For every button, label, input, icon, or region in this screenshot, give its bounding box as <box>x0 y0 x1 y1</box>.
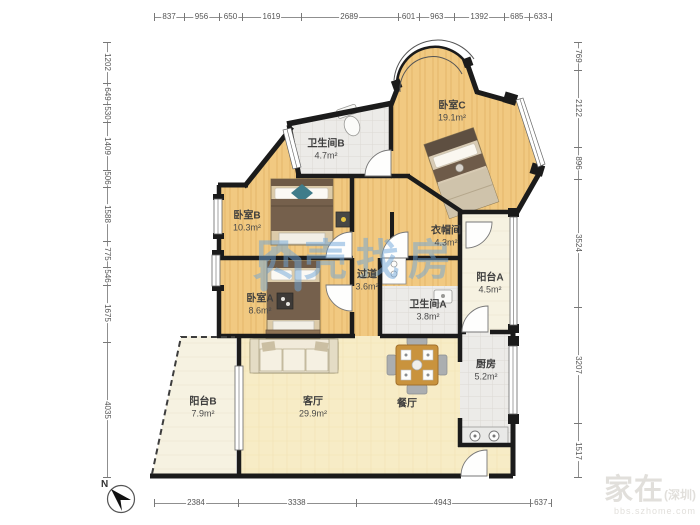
dimension-segment: 3524 <box>572 179 584 307</box>
dimension-segment: 4035 <box>101 342 113 478</box>
dimension-segment: 530 <box>101 104 113 122</box>
dimension-value: 3207 <box>574 355 582 375</box>
dimension-segment: 601 <box>398 11 420 23</box>
dimension-value: 4943 <box>433 499 453 507</box>
dimension-segment: 506 <box>101 170 113 187</box>
dimension-line-top: 837956650161926896019631392685633 <box>154 11 552 23</box>
dimension-segment: 4943 <box>356 497 530 509</box>
dimension-segment: 769 <box>572 42 584 70</box>
dimension-segment: 3207 <box>572 307 584 423</box>
sliding-door <box>235 366 243 450</box>
sofa-icon <box>250 339 338 373</box>
dimension-value: 1675 <box>103 304 111 324</box>
dimension-segment: 896 <box>572 147 584 179</box>
dimension-value: 649 <box>103 86 111 101</box>
window <box>212 255 220 286</box>
dimension-value: 956 <box>194 13 209 21</box>
dimension-value: 506 <box>103 171 111 186</box>
dimension-value: 637 <box>533 499 548 507</box>
dimension-segment: 633 <box>529 11 552 23</box>
compass-north-label: N <box>101 479 108 490</box>
dimension-segment: 1409 <box>101 122 113 170</box>
dimension-value: 1392 <box>469 13 489 21</box>
dimension-segment: 3338 <box>238 497 356 509</box>
dimension-segment: 2689 <box>301 11 398 23</box>
dimension-value: 3524 <box>574 233 582 253</box>
dimension-segment: 685 <box>504 11 529 23</box>
window <box>510 217 517 325</box>
dimension-value: 1409 <box>103 136 111 156</box>
dimension-segment: 775 <box>101 241 113 267</box>
dimension-segment: 963 <box>419 11 454 23</box>
dimension-value: 546 <box>103 268 111 283</box>
dimension-segment: 1619 <box>242 11 300 23</box>
dimension-line-bottom: 238433384943637 <box>154 497 552 509</box>
dimension-value: 837 <box>161 13 176 21</box>
dimension-segment: 637 <box>530 497 552 509</box>
window <box>509 346 517 414</box>
dimension-value: 1619 <box>262 13 282 21</box>
dimension-value: 1588 <box>103 204 111 224</box>
dimension-segment: 1517 <box>572 423 584 478</box>
dimension-value: 775 <box>103 246 111 261</box>
dimension-value: 769 <box>574 48 582 63</box>
bed-icon <box>271 179 333 245</box>
dimension-value: 963 <box>429 13 444 21</box>
lamp-icon <box>341 217 346 222</box>
dimension-value: 4035 <box>103 400 111 420</box>
dimension-segment: 1588 <box>101 187 113 241</box>
dimension-value: 633 <box>533 13 548 21</box>
dimension-value: 650 <box>223 13 238 21</box>
dimension-value: 685 <box>509 13 524 21</box>
dimension-value: 2122 <box>574 98 582 118</box>
bed-icon <box>267 261 320 333</box>
dimension-segment: 649 <box>101 83 113 105</box>
dimension-segment: 650 <box>219 11 242 23</box>
dimension-segment: 1675 <box>101 285 113 342</box>
dimension-segment: 2384 <box>154 497 238 509</box>
dimension-segment: 1392 <box>454 11 504 23</box>
dimension-value: 2689 <box>339 13 359 21</box>
dimension-value: 1517 <box>574 441 582 461</box>
compass-icon <box>108 486 135 513</box>
wardrobe-icon <box>382 254 406 284</box>
dimension-value: 896 <box>574 155 582 170</box>
dimension-segment: 1202 <box>101 42 113 83</box>
dimension-segment: 2122 <box>572 70 584 147</box>
stove-icon <box>461 427 508 444</box>
dimension-value: 2384 <box>186 499 206 507</box>
floor-balconyB <box>152 336 236 476</box>
dimension-segment: 546 <box>101 267 113 285</box>
sink-icon <box>434 290 452 303</box>
dimension-line-left: 12026495301409506158877554616754035 <box>101 42 113 478</box>
floorplan-page: 卧室C 19.1m² 卫生间B 4.7m² 卧室B 10.3m² 衣帽间 4.3… <box>0 0 700 525</box>
dimension-value: 530 <box>103 106 111 121</box>
dimension-value: 601 <box>401 13 416 21</box>
dimension-segment: 956 <box>184 11 219 23</box>
window <box>214 199 222 234</box>
dimension-value: 3338 <box>287 499 307 507</box>
dimension-line-right: 7692122896352432071517 <box>572 42 584 478</box>
dimension-value: 1202 <box>103 52 111 72</box>
dimension-segment: 837 <box>154 11 184 23</box>
